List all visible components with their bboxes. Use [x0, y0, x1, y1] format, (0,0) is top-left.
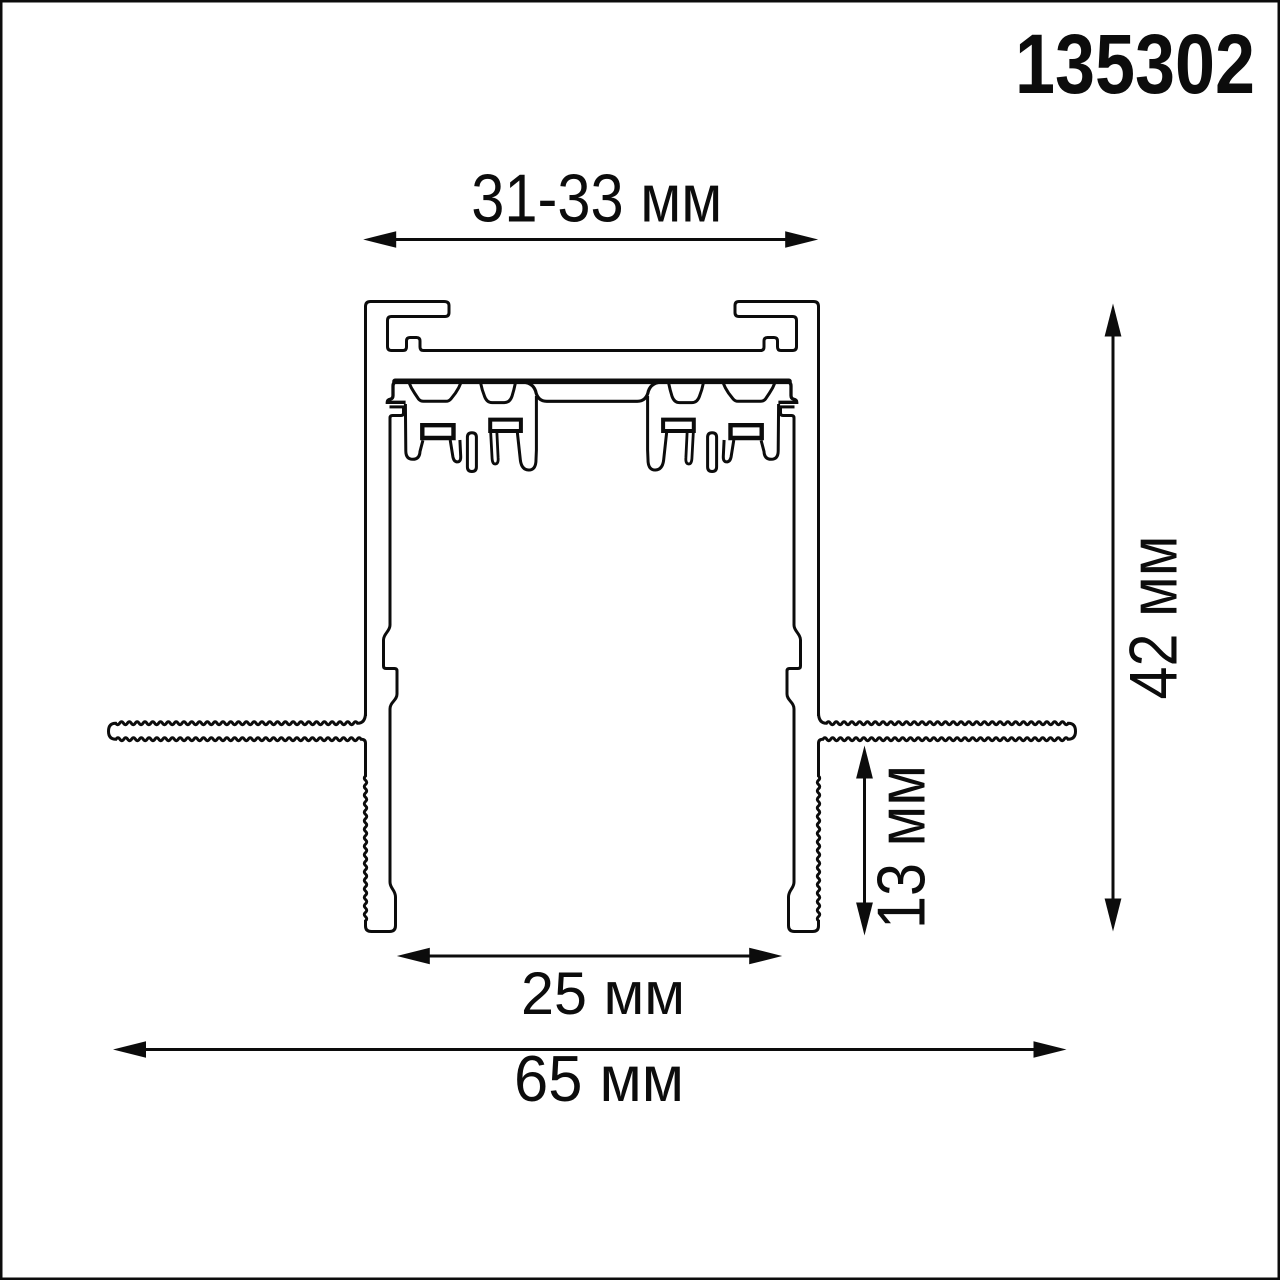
svg-text:31-33 мм: 31-33 мм — [471, 161, 722, 237]
svg-text:25 мм: 25 мм — [521, 960, 685, 1027]
svg-text:13 мм: 13 мм — [865, 765, 940, 929]
svg-text:65 мм: 65 мм — [514, 1043, 684, 1115]
svg-text:135302: 135302 — [1015, 17, 1255, 111]
svg-text:42 мм: 42 мм — [1117, 536, 1192, 700]
